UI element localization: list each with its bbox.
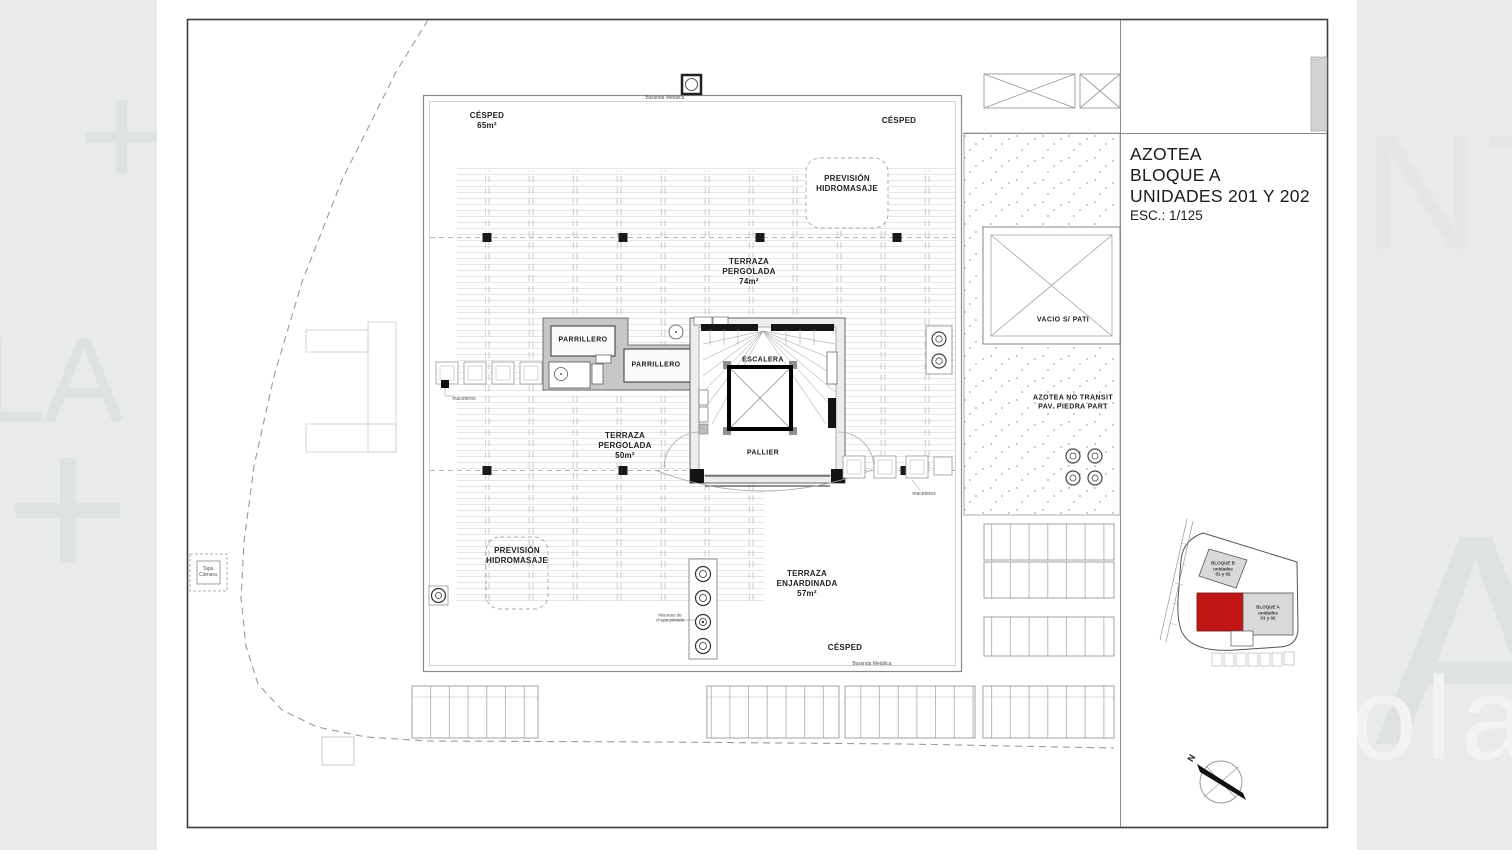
title-units: UNIDADES 201 Y 202 [1130, 186, 1310, 207]
key-bloque-b-label: BLOQUE B unidades 01 y 02 [1211, 561, 1235, 578]
elevator-shaft [723, 361, 797, 435]
pallier-label: PALLIER [747, 450, 779, 459]
north-arrow [1197, 761, 1246, 803]
vacio-label: VACIO S/ PATI [1037, 317, 1089, 326]
title-block-name: BLOQUE A [1130, 165, 1221, 186]
terraza-pergolada-50-label: TERRAZA PERGOLADA 50m² [598, 431, 651, 461]
plan-drawing [0, 0, 1512, 850]
prevision-hidromasaje-bottom-label: PREVISIÓN HIDROMASAJE [486, 546, 548, 566]
terraza-pergolada-74-label: TERRAZA PERGOLADA 74m² [722, 257, 775, 287]
maceteros-left-label: maceteros [452, 396, 475, 402]
parking-right [984, 524, 1114, 656]
cesped-topright-label: CÉSPED [882, 116, 916, 126]
key-plan [1160, 519, 1298, 666]
prevision-hidromasaje-top-label: PREVISIÓN HIDROMASAJE [816, 174, 878, 194]
baranda-metalica-label-top: Baranda Metálica [646, 95, 685, 101]
key-bloque-a-label: BLOQUE A unidades 01 y 02 [1256, 605, 1280, 622]
macetas-chapa-label: Macetas de chapa pintada [656, 613, 684, 624]
cesped-bottom-label: CÉSPED [828, 643, 862, 653]
roof-right-fixtures [926, 326, 952, 374]
key-highlight-unit [1197, 593, 1243, 631]
baranda-metalica-label-bottom: Baranda Metálica [853, 661, 892, 667]
parrillero-1-label: PARRILLERO [559, 337, 608, 346]
vacio-box [983, 227, 1120, 344]
title-project: AZOTEA [1130, 144, 1202, 165]
parking-bottom [412, 686, 1114, 738]
escalera-label: ESCALERA [742, 357, 784, 366]
terraza-enjardinada-label: TERRAZA ENJARDINADA 57m² [777, 569, 838, 599]
tapa-camara-label: Tapa Cámara [199, 566, 217, 579]
azotea-no-transitable-label: AZOTEA NO TRANSIT PAV. PIEDRA PART [1033, 394, 1113, 412]
hatch-boxes-top [984, 74, 1120, 108]
drawing-sheet-page: + LA + NT A olar [0, 0, 1512, 850]
maceteros-right-label: maceteros [912, 491, 935, 497]
title-scale: ESC.: 1/125 [1130, 208, 1203, 223]
parrillero-2-label: PARRILLERO [632, 362, 681, 371]
cesped-topleft-label: CÉSPED 65m² [470, 111, 504, 131]
neighbor-outlines [306, 322, 396, 765]
left-edge-circle [429, 586, 448, 605]
